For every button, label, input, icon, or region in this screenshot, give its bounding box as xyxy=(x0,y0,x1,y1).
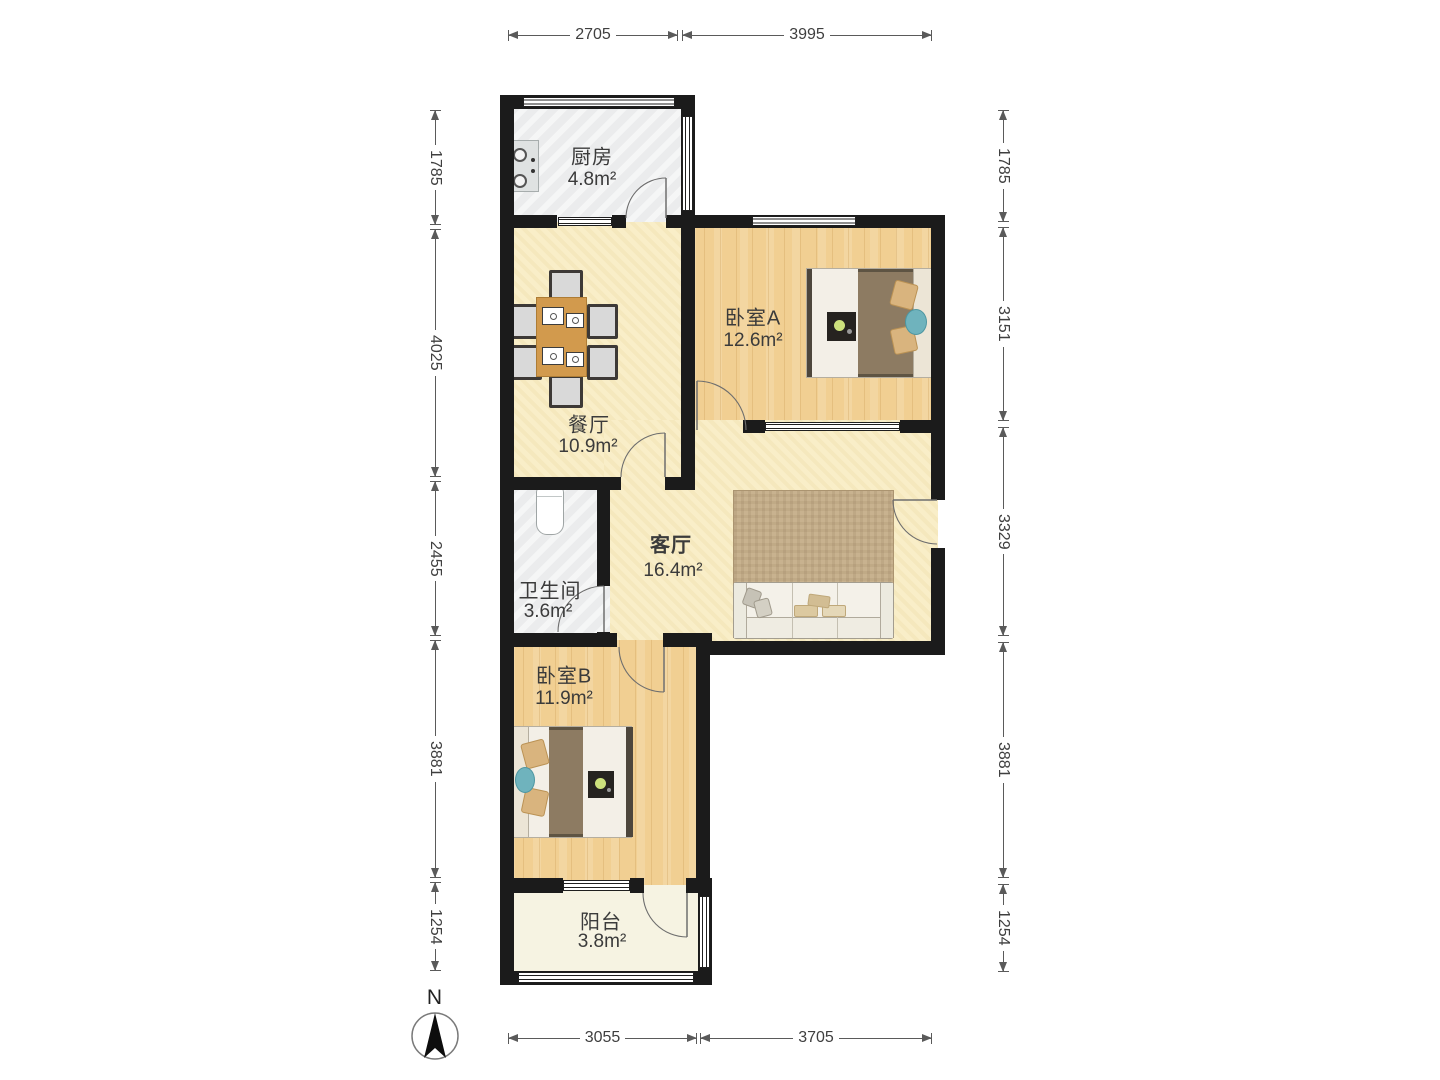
bedroom-a-area: 12.6m² xyxy=(723,330,782,352)
kitchen-label: 厨房 xyxy=(571,141,613,170)
bedroom-b-area: 11.9m² xyxy=(535,688,593,710)
dimension-left-3: 2455 xyxy=(425,481,445,636)
door-entry xyxy=(893,500,937,544)
living-area: 16.4m² xyxy=(643,560,702,582)
compass-north-label: N xyxy=(427,986,443,1010)
dimension-left-2: 4025 xyxy=(425,229,445,477)
living-label: 客厅 xyxy=(650,529,692,558)
dining-area: 10.9m² xyxy=(558,436,617,458)
door-kitchen xyxy=(626,178,666,218)
door-bedroom-b xyxy=(619,647,664,692)
dimension-left-1: 1785 xyxy=(425,110,445,225)
bathroom-area: 3.6m² xyxy=(524,601,573,623)
floor-plan: 厨房 4.8m² 卧室A 12.6m² 餐厅 10.9m² 客厅 16.4m² … xyxy=(0,0,1440,1080)
door-balcony xyxy=(643,893,687,937)
dimension-top-1: 2705 xyxy=(508,27,678,43)
door-dining xyxy=(621,433,665,477)
dimension-left-5: 1254 xyxy=(425,882,445,971)
dimension-right-2: 3151 xyxy=(993,227,1013,421)
dimension-right-3: 3329 xyxy=(993,427,1013,636)
dimension-right-4: 3881 xyxy=(993,642,1013,878)
dimension-top-2: 3995 xyxy=(682,27,932,43)
kitchen-area: 4.8m² xyxy=(568,169,617,191)
dining-label: 餐厅 xyxy=(568,409,610,438)
dimension-bottom-2: 3705 xyxy=(700,1030,932,1046)
dimension-right-5: 1254 xyxy=(993,884,1013,972)
bedroom-b-label: 卧室B xyxy=(536,660,592,689)
door-bedroom-a xyxy=(697,381,746,430)
dimension-bottom-1: 3055 xyxy=(508,1030,697,1046)
balcony-area: 3.8m² xyxy=(578,931,627,953)
dimension-left-4: 3881 xyxy=(425,640,445,878)
door-overlay xyxy=(0,0,1440,1080)
bedroom-a-label: 卧室A xyxy=(725,302,781,331)
bathroom-label: 卫生间 xyxy=(519,575,582,604)
dimension-right-1: 1785 xyxy=(993,110,1013,222)
